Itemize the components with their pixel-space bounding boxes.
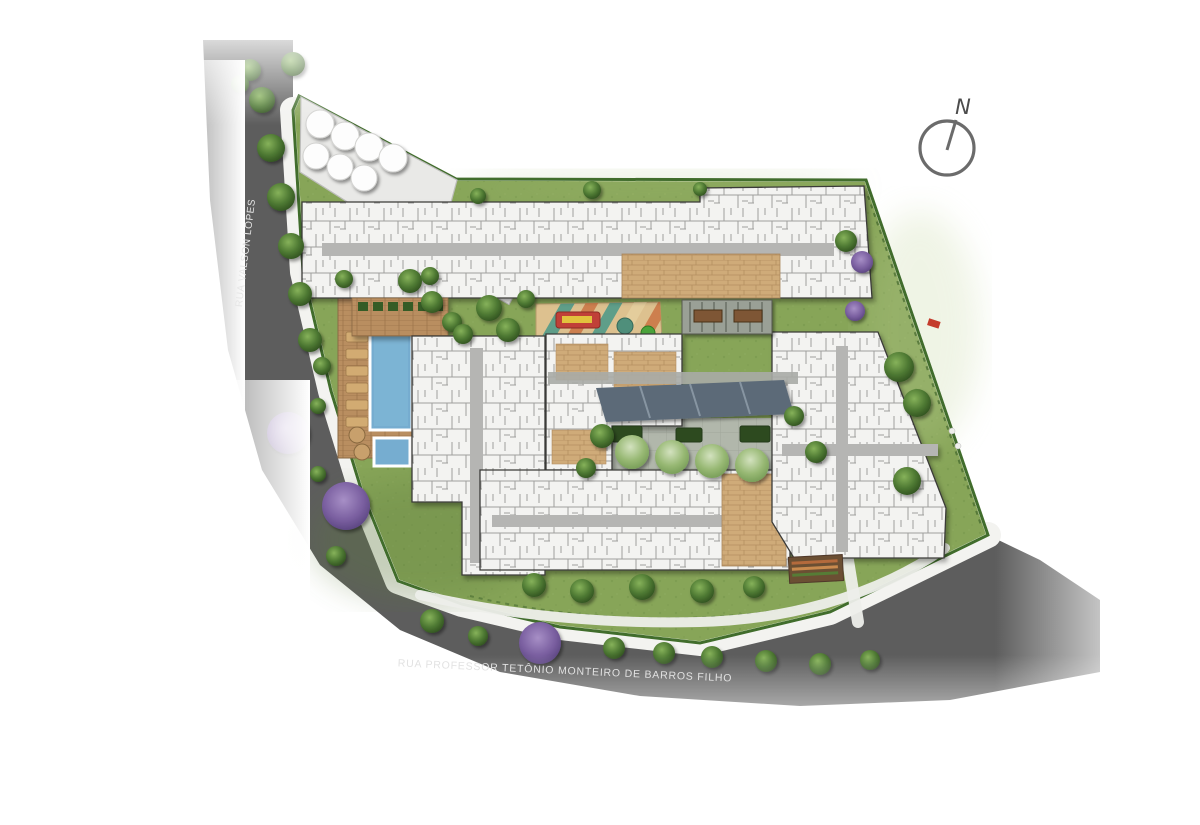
shrub-icon <box>310 466 326 482</box>
umbrella-icon <box>354 444 370 460</box>
umbrella-icon <box>349 427 365 443</box>
tree-icon <box>615 435 649 469</box>
site-plan-canvas: RUA VALSON LOPES RUA PROFESSOR TETÔNIO M… <box>0 0 1200 825</box>
building-top <box>302 186 872 298</box>
planter <box>403 302 413 311</box>
tree-icon <box>576 458 596 478</box>
hedge-planter <box>676 428 702 442</box>
tree-icon <box>590 424 614 448</box>
compass-north-label: N <box>955 95 971 119</box>
flowering-tree-icon <box>322 482 370 530</box>
tree-icon <box>583 181 601 199</box>
flowering-tree-icon <box>851 251 873 273</box>
tree-icon <box>570 579 594 603</box>
water-tank-icon <box>351 165 377 191</box>
lounge-chair-icon <box>346 383 368 393</box>
compass-needle <box>947 120 956 150</box>
tree-icon <box>693 182 707 196</box>
tree-icon <box>421 291 443 313</box>
tree-icon <box>476 295 502 321</box>
tree-icon <box>522 573 546 597</box>
tree-icon <box>496 318 520 342</box>
lounge-chair-icon <box>346 417 368 427</box>
tree-icon <box>398 269 422 293</box>
site-plan-drawing <box>0 0 1200 825</box>
table-dot <box>949 428 955 434</box>
tree-icon <box>835 230 857 252</box>
lounge-chair-icon <box>346 349 368 359</box>
water-tank-icon <box>303 143 329 169</box>
tree-icon <box>903 389 931 417</box>
tree-icon <box>743 576 765 598</box>
tree-icon <box>288 282 312 306</box>
tree-icon <box>453 324 473 344</box>
tree-icon <box>690 579 714 603</box>
tree-icon <box>517 290 535 308</box>
tree-icon <box>893 467 921 495</box>
tree-icon <box>421 267 439 285</box>
tree-icon <box>335 270 353 288</box>
tree-icon <box>313 357 331 375</box>
tree-icon <box>470 188 486 204</box>
tree-icon <box>805 441 827 463</box>
tree-icon <box>655 440 689 474</box>
planter <box>358 302 368 311</box>
tree-icon <box>267 183 295 211</box>
wood-floor-area <box>622 254 780 298</box>
community-garden <box>788 555 843 584</box>
flowering-tree-icon <box>845 301 865 321</box>
shrub-icon <box>326 546 346 566</box>
tree-icon <box>735 448 769 482</box>
north-compass-icon <box>920 120 974 175</box>
shrub-icon <box>468 626 488 646</box>
planter <box>373 302 383 311</box>
tree-icon <box>310 398 326 414</box>
table-dot <box>955 443 961 449</box>
tree-icon <box>695 444 729 478</box>
play-structure-icon <box>562 316 592 323</box>
lounge-chair-icon <box>346 366 368 376</box>
water-tank-icon <box>379 144 407 172</box>
water-tank-icon <box>327 154 353 180</box>
tree-icon <box>298 328 322 352</box>
tree-icon <box>784 406 804 426</box>
fade <box>150 380 310 640</box>
tree-icon <box>257 134 285 162</box>
tree-icon <box>884 352 914 382</box>
play-structure-icon <box>617 318 633 334</box>
tree-icon <box>278 233 304 259</box>
fade <box>995 515 1160 715</box>
picnic-table-icon <box>694 310 722 322</box>
lounge-chair-icon <box>346 400 368 410</box>
picnic-table-icon <box>734 310 762 322</box>
shrub-icon <box>420 609 444 633</box>
planter <box>388 302 398 311</box>
pergola <box>682 300 772 334</box>
kids-pool <box>374 438 410 466</box>
tree-icon <box>629 574 655 600</box>
hedge-planter <box>740 426 770 442</box>
